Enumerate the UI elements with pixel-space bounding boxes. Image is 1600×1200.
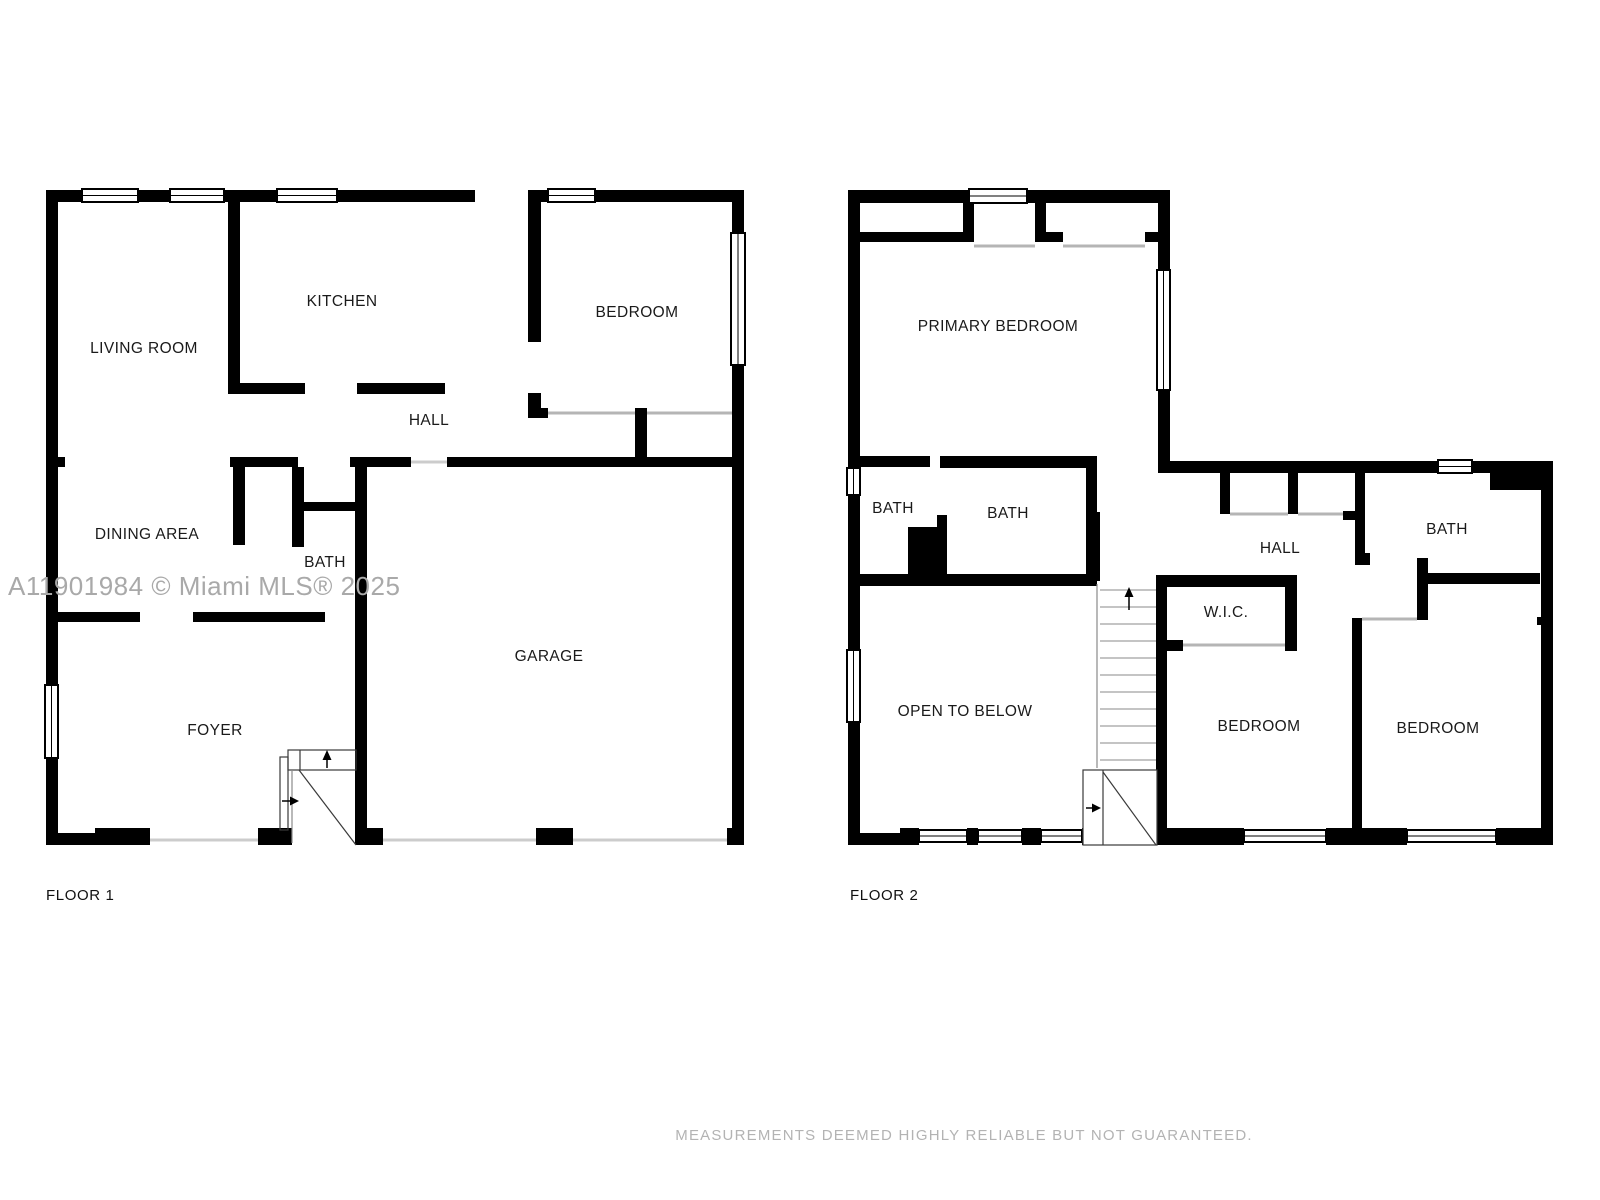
room-label-garage: GARAGE (515, 648, 584, 666)
room-label-bedroom: BEDROOM (1397, 720, 1480, 738)
floor1-windows (45, 189, 745, 758)
room-label-bath: BATH (987, 505, 1029, 523)
floor2-stairs (1083, 584, 1157, 845)
room-label-open-to-below: OPEN TO BELOW (898, 703, 1033, 721)
room-label-kitchen: KITCHEN (307, 293, 378, 311)
stair-diagonal-line (299, 770, 356, 845)
room-label-dining-area: DINING AREA (95, 526, 199, 544)
floor1-stairs (280, 750, 356, 845)
room-label-bath: BATH (1426, 521, 1468, 539)
room-label-bath: BATH (872, 500, 914, 518)
room-label-bath: BATH (304, 554, 346, 572)
mls-watermark: A11901984 © Miami MLS® 2025 (8, 571, 400, 602)
room-label-primary-bedroom: PRIMARY BEDROOM (918, 318, 1078, 336)
floor2-plan (847, 189, 1553, 845)
room-label-hall: HALL (409, 412, 449, 430)
room-label-w-i-c: W.I.C. (1204, 604, 1249, 622)
disclaimer-text: MEASUREMENTS DEEMED HIGHLY RELIABLE BUT … (564, 1127, 1364, 1144)
stair-treads (1100, 590, 1156, 760)
floor1-plan (45, 189, 745, 845)
stair-right-arrow-icon (282, 797, 299, 806)
floor2-title: FLOOR 2 (850, 887, 918, 904)
room-label-bedroom: BEDROOM (596, 304, 679, 322)
floor1-title: FLOOR 1 (46, 887, 114, 904)
room-label-hall: HALL (1260, 540, 1300, 558)
floorplan-page: LIVING ROOMKITCHENBEDROOMHALLDINING AREA… (0, 0, 1600, 1200)
room-label-foyer: FOYER (187, 722, 242, 740)
floor1-walls (46, 190, 744, 845)
room-label-living-room: LIVING ROOM (90, 340, 198, 358)
room-label-bedroom: BEDROOM (1218, 718, 1301, 736)
floor2-walls (848, 190, 1553, 845)
stair-up-arrow-icon (323, 750, 332, 768)
